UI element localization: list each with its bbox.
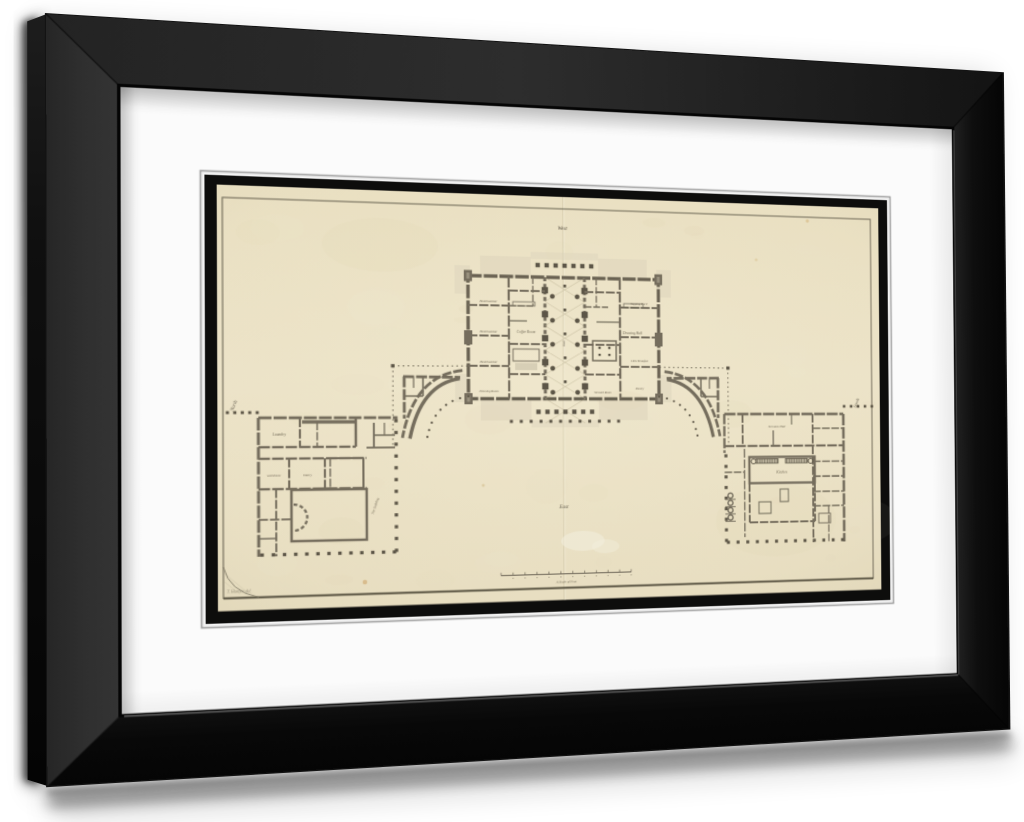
- svg-text:Bedchamber: Bedchamber: [480, 330, 498, 334]
- svg-text:Coffee Room: Coffee Room: [517, 329, 536, 334]
- svg-text:Steward Room: Steward Room: [594, 391, 611, 395]
- svg-text:Dressing Room: Dressing Room: [478, 389, 499, 393]
- svg-text:Bedchamber: Bedchamber: [480, 360, 498, 364]
- svg-text:washhouse: washhouse: [267, 474, 281, 478]
- svg-text:Hall: Hall: [562, 340, 566, 347]
- svg-text:Dairy: Dairy: [302, 473, 312, 477]
- svg-text:A Scale of Feet: A Scale of Feet: [555, 580, 577, 584]
- svg-text:Little Breakfast: Little Breakfast: [630, 359, 648, 363]
- svg-text:Kitchen: Kitchen: [776, 470, 788, 474]
- svg-text:West: West: [558, 226, 568, 232]
- svg-text:East: East: [559, 505, 569, 510]
- svg-text:Laundry: Laundry: [272, 432, 286, 437]
- svg-text:Pantry: Pantry: [635, 387, 645, 391]
- svg-text:T. Harber del.: T. Harber del.: [227, 589, 252, 594]
- svg-text:Drawing Hall: Drawing Hall: [622, 331, 643, 336]
- svg-text:Supping Parlr: Supping Parlr: [631, 302, 649, 306]
- svg-text:Servants Hall: Servants Hall: [768, 425, 785, 428]
- svg-text:Bedchamber: Bedchamber: [480, 299, 498, 303]
